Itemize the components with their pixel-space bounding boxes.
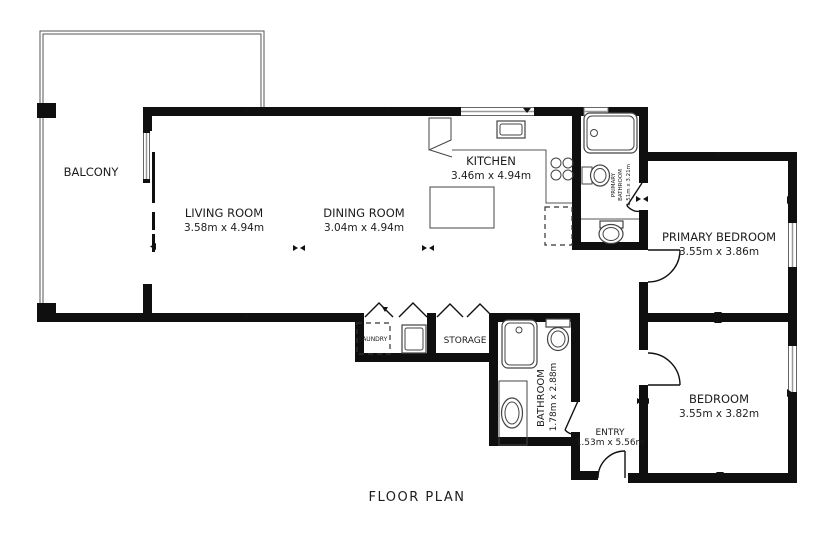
wall-segment <box>639 313 788 322</box>
bathroom-dims: 1.78m x 2.88m <box>549 363 559 432</box>
wall-segment <box>355 353 497 362</box>
wall-segment <box>639 322 648 350</box>
wall-segment <box>578 471 598 480</box>
primary-bedroom-window <box>788 219 797 271</box>
bedroom-label: BEDROOM <box>689 392 749 406</box>
bathroom-label: BATHROOM <box>536 369 547 427</box>
living-room-label: LIVING ROOM <box>185 206 263 220</box>
entry-dims: 1.53m x 5.56m <box>576 438 645 448</box>
primary-bathroom-dims: 1.51m x 3.21m <box>626 164 632 206</box>
kitchen-sink-icon <box>497 121 525 138</box>
storage-label: STORAGE <box>444 336 487 346</box>
bedroom-dims: 3.55m x 3.82m <box>679 408 759 420</box>
wall-segment <box>427 313 436 358</box>
bedroom-window <box>788 342 797 396</box>
wall-segment <box>788 270 797 345</box>
fridge-icon <box>429 118 452 157</box>
wall-segment <box>143 107 459 116</box>
primary-bathroom-label-bottom: BATHROOM <box>618 169 624 201</box>
entry-label: ENTRY <box>595 428 625 438</box>
dining-room-label: DINING ROOM <box>323 206 404 220</box>
primary-bedroom-door <box>648 250 680 282</box>
wall-segment <box>571 322 580 402</box>
floor-plan-title: FLOOR PLAN <box>369 490 466 505</box>
primary-bathroom-label-top: PRIMARY <box>611 172 617 197</box>
bathroom-shower-icon <box>502 320 537 368</box>
bedroom-door <box>648 353 680 385</box>
dining-room-dims: 3.04m x 4.94m <box>324 222 404 234</box>
wall-segment <box>143 107 152 131</box>
entry-door <box>598 451 625 478</box>
balcony-label: BALCONY <box>64 165 120 179</box>
primary-bedroom-dims: 3.55m x 3.86m <box>679 246 759 258</box>
washer-icon <box>402 325 426 353</box>
kitchen-label: KITCHEN <box>466 154 516 168</box>
wall-segment <box>788 395 797 483</box>
balcony-pillar <box>37 103 56 118</box>
primary-bedroom-label: PRIMARY BEDROOM <box>662 230 776 244</box>
laundry-label: LAUNDRY <box>359 336 388 343</box>
wall-segment <box>37 313 364 322</box>
wall-segment <box>639 385 648 473</box>
wall-segment <box>788 152 797 222</box>
primary-basin-icon <box>582 165 610 186</box>
dishwasher-icon <box>545 207 572 245</box>
storage-folding-doors <box>437 304 493 317</box>
wall-segment <box>639 107 648 183</box>
interior-lines <box>430 150 639 445</box>
laundry-folding-doors <box>365 303 427 317</box>
wc-toilet-icon <box>599 221 623 244</box>
bathroom-sink-icon <box>502 398 523 428</box>
wall-segment <box>628 473 797 483</box>
stove-icon <box>551 158 573 180</box>
walls <box>37 107 797 483</box>
wall-segment <box>572 107 581 250</box>
bathroom-toilet-icon <box>546 319 570 351</box>
living-room-dims: 3.58m x 4.94m <box>184 222 264 234</box>
kitchen-dims: 3.46m x 4.94m <box>451 170 531 182</box>
primary-shower-icon <box>584 113 637 153</box>
balcony-sliding-door <box>143 129 155 252</box>
floor-plan-canvas: BALCONY LIVING ROOM 3.58m x 4.94m DINING… <box>0 0 833 540</box>
wall-segment <box>489 313 498 446</box>
kitchen-island <box>430 187 494 228</box>
floor-plan-drawing: BALCONY LIVING ROOM 3.58m x 4.94m DINING… <box>0 0 833 540</box>
bathroom-door <box>565 401 578 435</box>
